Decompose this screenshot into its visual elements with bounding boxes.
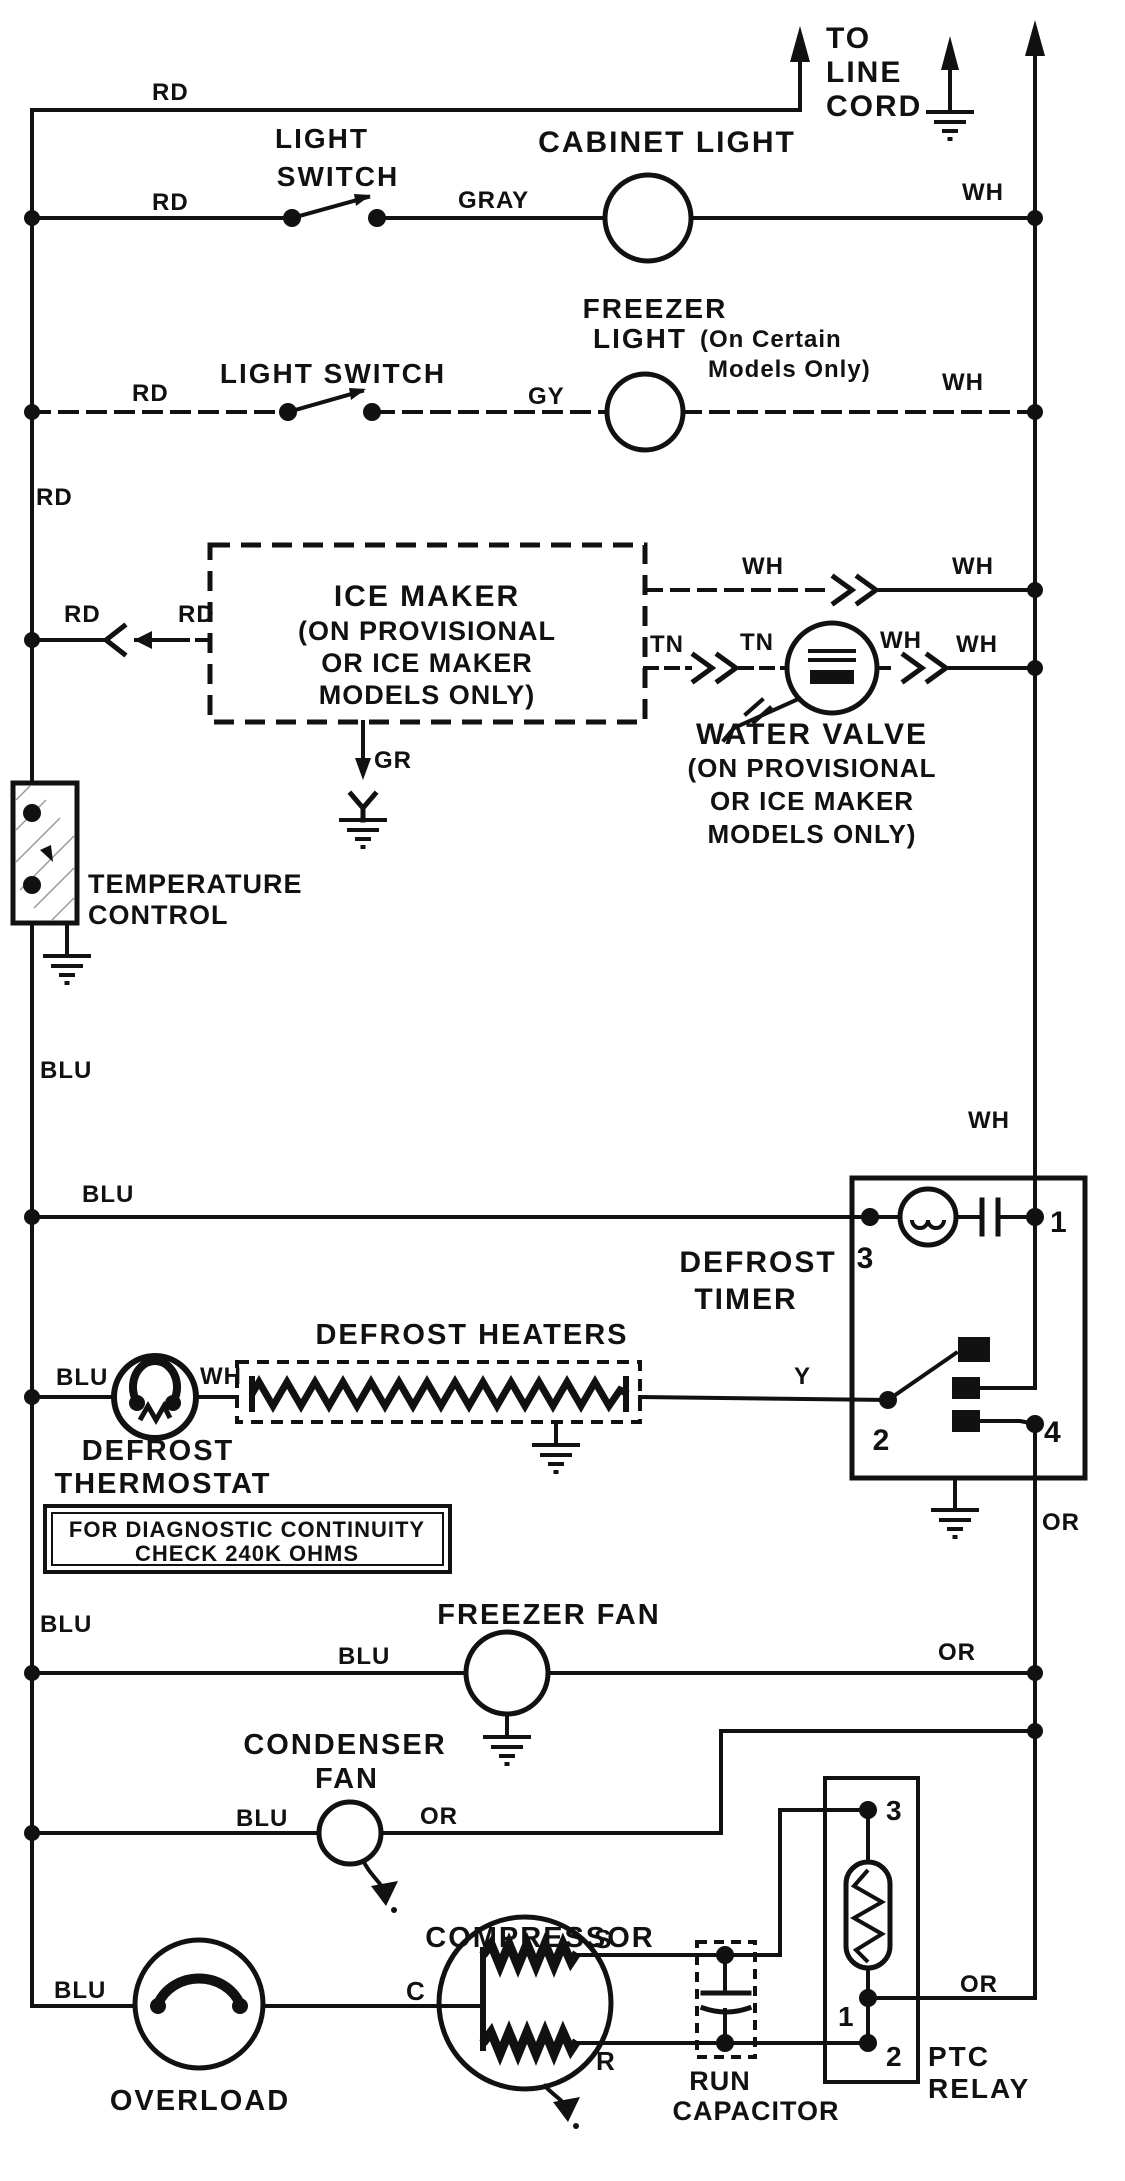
- freezer-fan-ground-icon: [483, 1737, 531, 1764]
- wire-label: Y: [794, 1363, 811, 1390]
- component-label: (ON PROVISIONAL: [298, 616, 556, 646]
- overload-symbol: [135, 1940, 263, 2068]
- component-label: DEFROST: [679, 1246, 836, 1279]
- wire-label: WH: [880, 627, 922, 654]
- wiring-diagram-page: RD TO LINE CORD LIGHT SWITCH CABINET LIG…: [0, 0, 1125, 2181]
- compressor-ground-icon: [553, 2097, 580, 2129]
- wire-label: WH: [968, 1107, 1010, 1134]
- component-label: MODELS ONLY): [708, 819, 917, 849]
- cabinet-light-switch: [283, 194, 386, 227]
- component-label: OR ICE MAKER: [321, 648, 533, 678]
- top-ground-icon: [926, 112, 974, 139]
- component-label: CONTROL: [88, 900, 228, 930]
- wire-label: BLU: [82, 1181, 134, 1208]
- terminal-label: 4: [1044, 1416, 1063, 1449]
- freezer-light-bulb: [607, 374, 683, 450]
- condenser-fan-ground-icon: [371, 1881, 398, 1913]
- to-line-cord-label: CORD: [826, 90, 922, 123]
- timer-motor-icon: [900, 1189, 956, 1245]
- temp-control-ground-icon: [43, 956, 91, 983]
- component-label: THERMOSTAT: [54, 1468, 271, 1500]
- wire-label: RD: [36, 484, 73, 511]
- ice-maker-ground-icon: [339, 820, 387, 847]
- wiring: [32, 48, 1035, 2106]
- junction-dots: [24, 210, 1043, 2052]
- line-cord-wire: [32, 54, 800, 110]
- terminal-label: R: [596, 2046, 616, 2076]
- wire-label: RD: [132, 380, 169, 407]
- component-label: LIGHT: [593, 323, 687, 354]
- note-label: (On Certain: [700, 326, 842, 353]
- wire-label: RD: [152, 79, 189, 106]
- to-line-cord-label: LINE: [826, 56, 902, 89]
- defrost-thermostat-symbol: [114, 1356, 196, 1438]
- wire-label: OR: [938, 1639, 976, 1666]
- terminal-label: C: [406, 1976, 426, 2006]
- component-label: CONDENSER: [243, 1729, 446, 1761]
- component-label: COMPRESSOR: [425, 1922, 654, 1954]
- switch-label: LIGHT SWITCH: [220, 358, 446, 389]
- component-label: RELAY: [928, 2073, 1030, 2104]
- ptc-relay-symbol: [825, 1778, 918, 2082]
- freezer-light-switch: [279, 388, 381, 421]
- component-label: PTC: [928, 2041, 990, 2072]
- component-label: TEMPERATURE: [88, 869, 303, 899]
- cabinet-light-bulb: [605, 175, 691, 261]
- component-label: FREEZER: [583, 293, 728, 324]
- component-label: DEFROST: [82, 1435, 235, 1467]
- line-cord-arrow-icon: [790, 26, 810, 62]
- component-label: CAPACITOR: [672, 2096, 839, 2126]
- defrost-heaters-symbol: [237, 1362, 640, 1422]
- component-label: ICE MAKER: [334, 580, 520, 613]
- wire-label: WH: [962, 179, 1004, 206]
- component-label: RUN: [689, 2066, 751, 2096]
- wire-label: GRAY: [458, 187, 529, 214]
- ground-arrow-icon: [941, 36, 959, 70]
- wire-label: BLU: [338, 1643, 390, 1670]
- wire-label: BLU: [40, 1611, 92, 1638]
- wire-label: WH: [956, 631, 998, 658]
- component-label: FAN: [315, 1763, 379, 1795]
- freezer-fan-motor: [466, 1632, 548, 1714]
- wire-label: BLU: [56, 1364, 108, 1391]
- terminal-label: S: [594, 1924, 612, 1954]
- wire-label: TN: [650, 631, 684, 658]
- wire-label: WH: [942, 369, 984, 396]
- temperature-control-symbol: [13, 783, 77, 923]
- wire-label: OR: [420, 1803, 458, 1830]
- note-label: FOR DIAGNOSTIC CONTINUITY: [69, 1517, 425, 1542]
- component-label: FREEZER FAN: [437, 1599, 660, 1631]
- wire-label: RD: [152, 189, 189, 216]
- switch-label: SWITCH: [277, 161, 399, 192]
- terminal-label: 1: [1050, 1206, 1069, 1239]
- component-label: TIMER: [694, 1283, 797, 1316]
- timer-ground-icon: [931, 1510, 979, 1537]
- wire-label: RD: [178, 601, 215, 628]
- component-label: CABINET LIGHT: [538, 126, 796, 159]
- wire-label: WH: [742, 553, 784, 580]
- ice-maker-ground-arrow-icon: [355, 758, 371, 780]
- terminal-label: 2: [873, 1424, 892, 1457]
- note-label: CHECK 240K OHMS: [135, 1541, 359, 1566]
- wire-label: GR: [374, 747, 412, 774]
- labels: RD TO LINE CORD LIGHT SWITCH CABINET LIG…: [36, 22, 1080, 2126]
- switch-label: LIGHT: [275, 123, 369, 154]
- terminal-label: 1: [838, 2001, 856, 2032]
- condenser-fan-motor: [319, 1802, 381, 1864]
- wire-label: OR: [1042, 1509, 1080, 1536]
- wire-label: BLU: [40, 1057, 92, 1084]
- wire-label: RD: [64, 601, 101, 628]
- terminal-label: 3: [886, 1795, 904, 1826]
- wire-label: BLU: [54, 1977, 106, 2004]
- component-label: WATER VALVE: [696, 718, 928, 751]
- wire-label: BLU: [236, 1805, 288, 1832]
- right-rail-wire: [980, 48, 1035, 1388]
- to-line-cord-label: TO: [826, 22, 871, 55]
- ice-maker-connector-arrow-icon: [134, 631, 152, 649]
- water-valve-symbol: [787, 623, 877, 713]
- heater-ground-icon: [532, 1445, 580, 1472]
- component-label: MODELS ONLY): [319, 680, 536, 710]
- right-rail-arrow-icon: [1025, 20, 1045, 56]
- wire-label: GY: [528, 383, 565, 410]
- terminal-label: 3: [857, 1242, 876, 1275]
- component-label: DEFROST HEATERS: [315, 1319, 628, 1351]
- wire-label: WH: [200, 1363, 242, 1390]
- refrigerator-wiring-diagram: RD TO LINE CORD LIGHT SWITCH CABINET LIG…: [0, 0, 1125, 2181]
- wire-label: WH: [952, 553, 994, 580]
- component-label: OVERLOAD: [110, 2085, 290, 2117]
- wire-label: OR: [960, 1971, 998, 1998]
- note-label: Models Only): [708, 356, 871, 383]
- terminal-label: 2: [886, 2041, 904, 2072]
- component-label: (ON PROVISIONAL: [687, 753, 936, 783]
- component-label: OR ICE MAKER: [710, 786, 914, 816]
- wire-label: TN: [740, 629, 774, 656]
